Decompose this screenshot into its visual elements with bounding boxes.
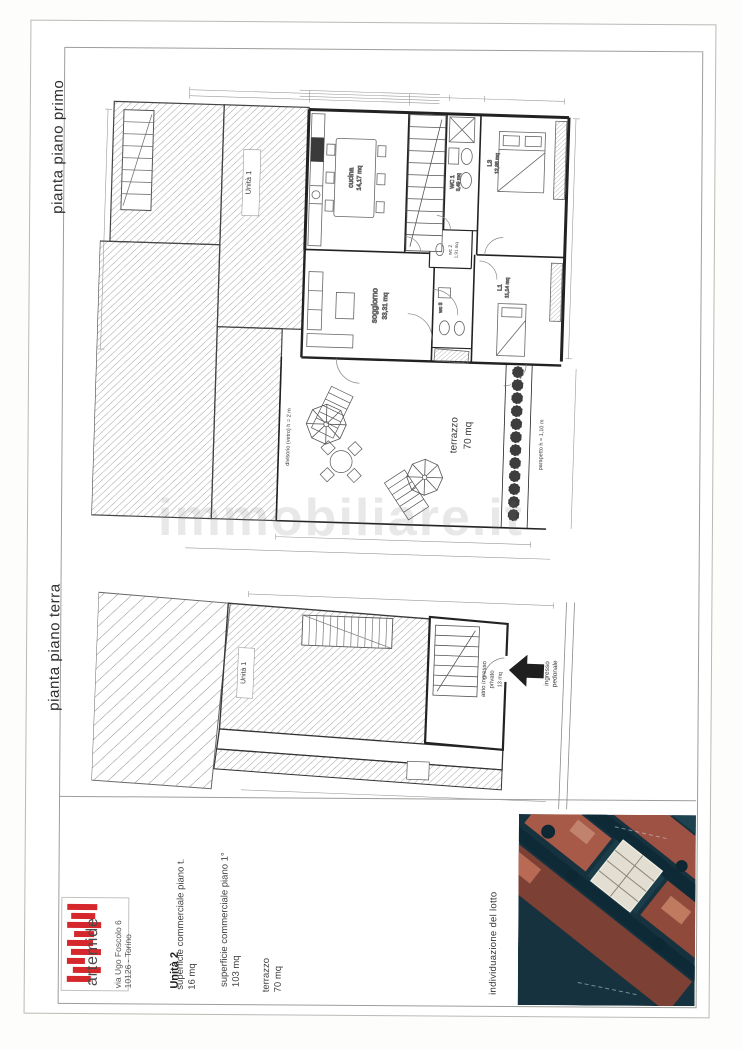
kitchen-area: 14,17 mq xyxy=(357,165,364,190)
surface-row-first-value: 103 mq xyxy=(231,828,244,987)
living-room: soggiorno 33,31 mq xyxy=(307,272,390,350)
l1-area: 11,14 mq xyxy=(504,277,511,298)
pedestrian-entrance-1: ingresso xyxy=(543,661,551,686)
main-stairs xyxy=(406,115,446,252)
wc1-area: 3,49 mq xyxy=(456,173,463,191)
aerial-photo xyxy=(518,814,696,1006)
wc1: WC 1 3,49 mq xyxy=(448,117,475,192)
surface-row-ground-label: superficie commerciale piano t. xyxy=(175,834,188,990)
kitchen: cucina 14,17 mq xyxy=(308,114,387,248)
artemide-wordmark: artemide xyxy=(84,904,106,986)
wc2-area: 1,91 mq xyxy=(454,241,460,258)
sofa xyxy=(307,272,323,330)
address-line-1: via Ugo Foscolo 6 xyxy=(113,904,124,988)
surface-row-terrace-label: terrazzo xyxy=(261,942,273,992)
unita1-stairs xyxy=(121,110,154,211)
wc3-label: wc 3 xyxy=(438,302,444,313)
agency-address: via Ugo Foscolo 6 10126 - Torino xyxy=(113,904,134,988)
parasol xyxy=(306,404,347,445)
gf-unita1-stairs xyxy=(302,615,393,648)
hedge-row xyxy=(507,366,524,521)
ground-floor-title: pianta piano terra xyxy=(46,594,69,711)
surface-row-first-label: superficie commerciale piano 1° xyxy=(219,828,232,987)
bedroom-l1: L1 11,14 mq xyxy=(496,261,563,357)
parapet-note: parapetto h = 1,10 m xyxy=(538,419,546,470)
kitchen-label: cucina xyxy=(348,168,356,189)
first-floor-title: pianta piano primo xyxy=(49,94,72,214)
first-floor-plan: Unità 1 cucina 14,17 mq xyxy=(90,79,610,575)
terrace-label: terrazzo xyxy=(448,417,460,454)
address-line-2: 10126 - Torino xyxy=(123,904,134,988)
unita1-hatched-area: Unità 1 xyxy=(91,101,309,521)
surface-row-terrace: terrazzo 70 mq xyxy=(261,942,287,992)
surface-row-ground-value: 16 mq xyxy=(187,834,200,990)
gf-stairs xyxy=(433,625,480,697)
gf-neighbour-band xyxy=(91,592,230,789)
gf-unita1-area: Unità 1 xyxy=(219,603,430,745)
l3-label: L3 xyxy=(487,159,493,167)
ground-floor-plan: Unità 1 atrio ingresso privato 13 mq ing… xyxy=(91,584,604,810)
stove xyxy=(311,138,325,162)
unita1-label: Unità 1 xyxy=(243,171,253,195)
pedestrian-entrance-2: pedonale xyxy=(551,660,559,687)
surface-row-terrace-value: 70 mq xyxy=(273,942,285,992)
gf-atrio-label-2: privato xyxy=(489,670,496,689)
soggiorno-area: 33,31 mq xyxy=(382,292,390,320)
terrace-area: 70 mq xyxy=(463,422,475,450)
surface-row-first: superficie commerciale piano 1° 103 mq xyxy=(219,828,246,987)
scanned-floorplan-page: { "document": { "watermark": "immobiliar… xyxy=(0,0,742,1050)
gf-entrance-hall: atrio ingresso privato 13 mq xyxy=(425,617,510,750)
gf-unita1-label: Unità 1 xyxy=(240,662,248,685)
double-bed xyxy=(498,131,546,192)
gf-front-door xyxy=(407,761,430,780)
terrace: terrazzo 70 mq parapetto h = 1,10 m divi… xyxy=(283,359,547,524)
lot-identification-label: individuazione del lotto xyxy=(488,882,504,995)
surface-row-ground: superficie commerciale piano t. 16 mq xyxy=(175,834,202,990)
soggiorno-label: soggiorno xyxy=(369,287,379,323)
bedroom-l3: L3 12,88 mq xyxy=(486,119,566,199)
gf-atrio-area: 13 mq xyxy=(497,672,504,688)
l1-label: L1 xyxy=(498,283,504,291)
l3-area: 12,88 mq xyxy=(494,153,501,174)
divider-note: divisorio (vetro) h = 2 m xyxy=(285,408,293,466)
scanned-sheet: pianta piano primo pianta piano terra xyxy=(24,20,717,1019)
street-lines xyxy=(559,602,575,809)
entrance-arrow xyxy=(508,654,544,687)
